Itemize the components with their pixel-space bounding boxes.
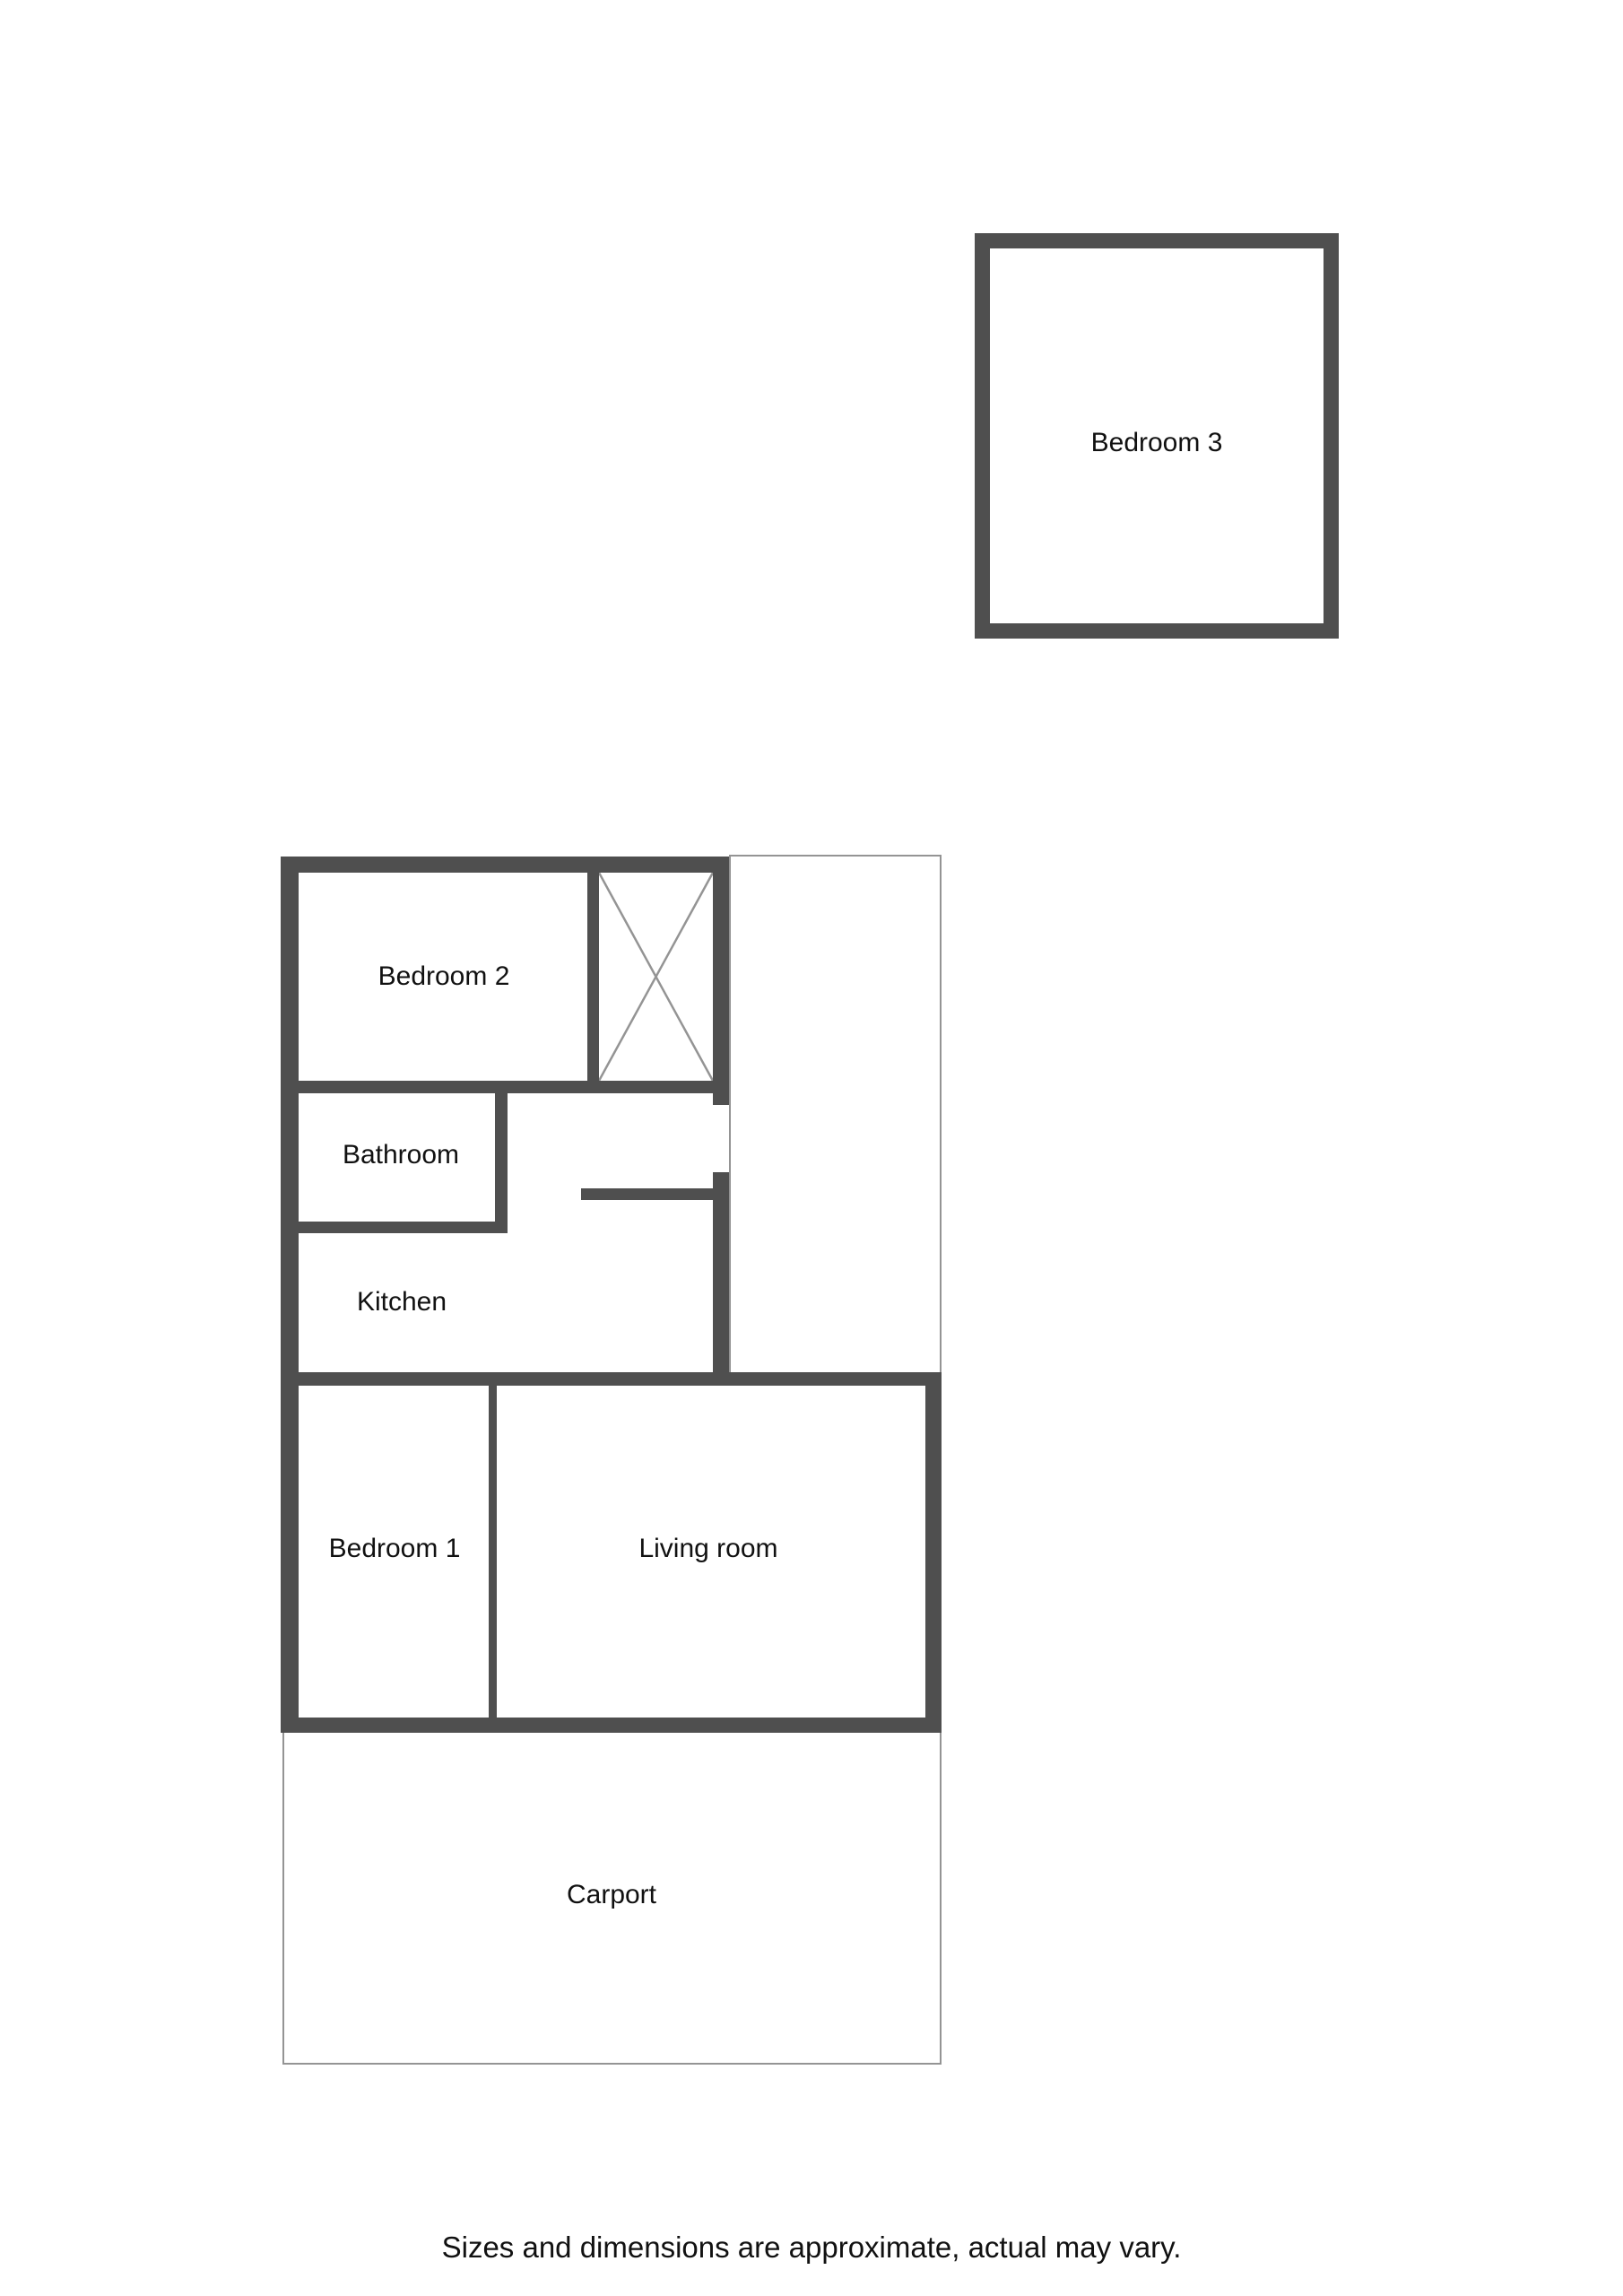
wall (281, 1222, 508, 1233)
wall (975, 233, 990, 639)
closet-cross-icon (599, 873, 713, 1081)
wall (581, 1188, 729, 1200)
wall (925, 1372, 942, 1733)
wall (975, 623, 1339, 639)
room-label-bedroom3: Bedroom 3 (1091, 430, 1223, 457)
wall (713, 857, 729, 1105)
floorplan-canvas: Bedroom 3 Bedroom 2 Bathroom Kitchen Bed… (0, 0, 1623, 2296)
wall (281, 1081, 729, 1093)
room-label-bathroom: Bathroom (343, 1142, 459, 1169)
room-label-bedroom2: Bedroom 2 (378, 963, 510, 990)
wall (281, 857, 729, 873)
wall (495, 1093, 508, 1223)
wall (281, 1718, 942, 1733)
wall (281, 1372, 942, 1386)
wall (281, 857, 299, 1733)
open-area-outline (729, 855, 942, 1374)
room-label-kitchen: Kitchen (357, 1289, 447, 1316)
wall (587, 873, 599, 1083)
wall (1324, 233, 1339, 639)
wall (489, 1386, 497, 1718)
footer-disclaimer: Sizes and dimensions are approximate, ac… (442, 2231, 1182, 2265)
room-label-living-room: Living room (638, 1535, 777, 1562)
wall (713, 1172, 729, 1386)
room-label-bedroom1: Bedroom 1 (329, 1535, 461, 1562)
wall (975, 233, 1339, 248)
room-label-carport: Carport (567, 1882, 656, 1909)
